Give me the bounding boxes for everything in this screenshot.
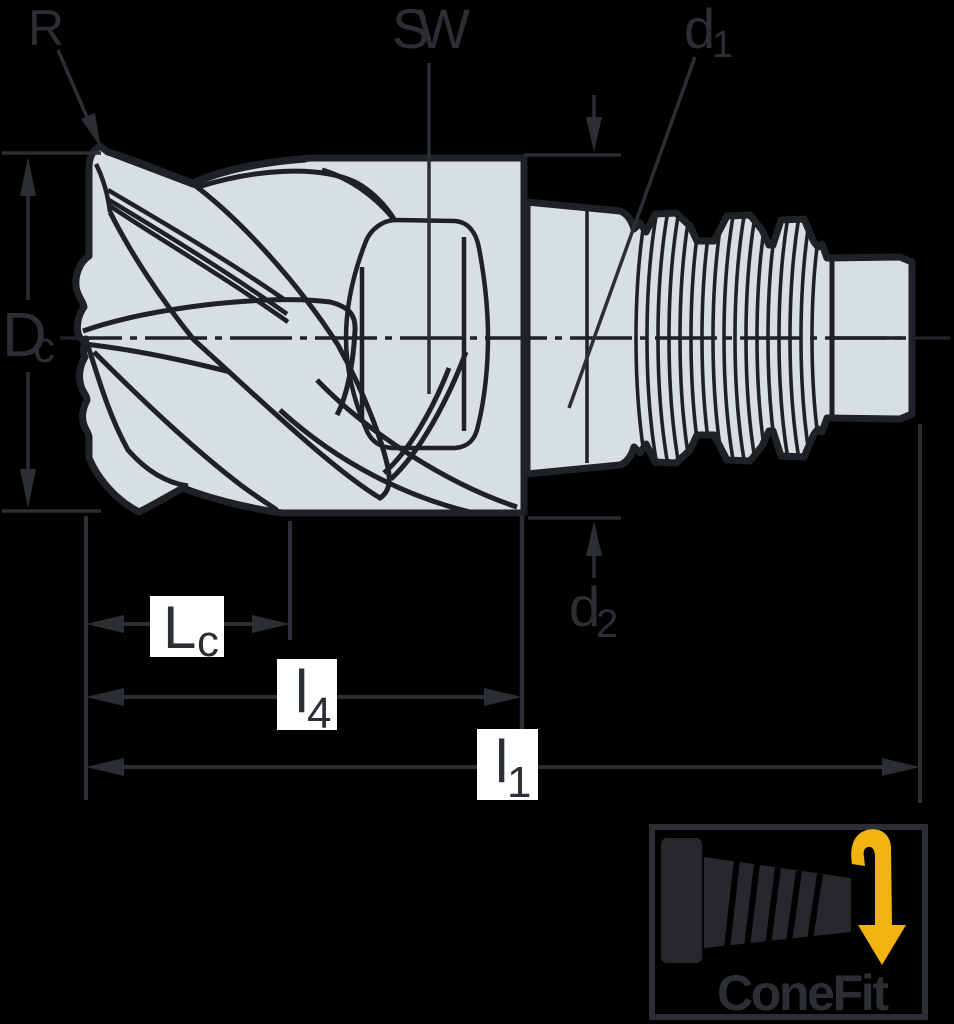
svg-text:ConeFit: ConeFit <box>717 965 889 1021</box>
svg-text:c: c <box>197 617 219 666</box>
svg-text:L: L <box>163 594 196 661</box>
svg-text:d: d <box>684 0 715 60</box>
svg-text:1: 1 <box>712 24 733 66</box>
svg-text:R: R <box>28 0 64 56</box>
svg-text:2: 2 <box>596 602 618 646</box>
svg-text:4: 4 <box>307 689 331 738</box>
svg-text:1: 1 <box>507 758 531 807</box>
svg-text:c: c <box>33 323 55 372</box>
svg-text:SW: SW <box>392 0 470 60</box>
